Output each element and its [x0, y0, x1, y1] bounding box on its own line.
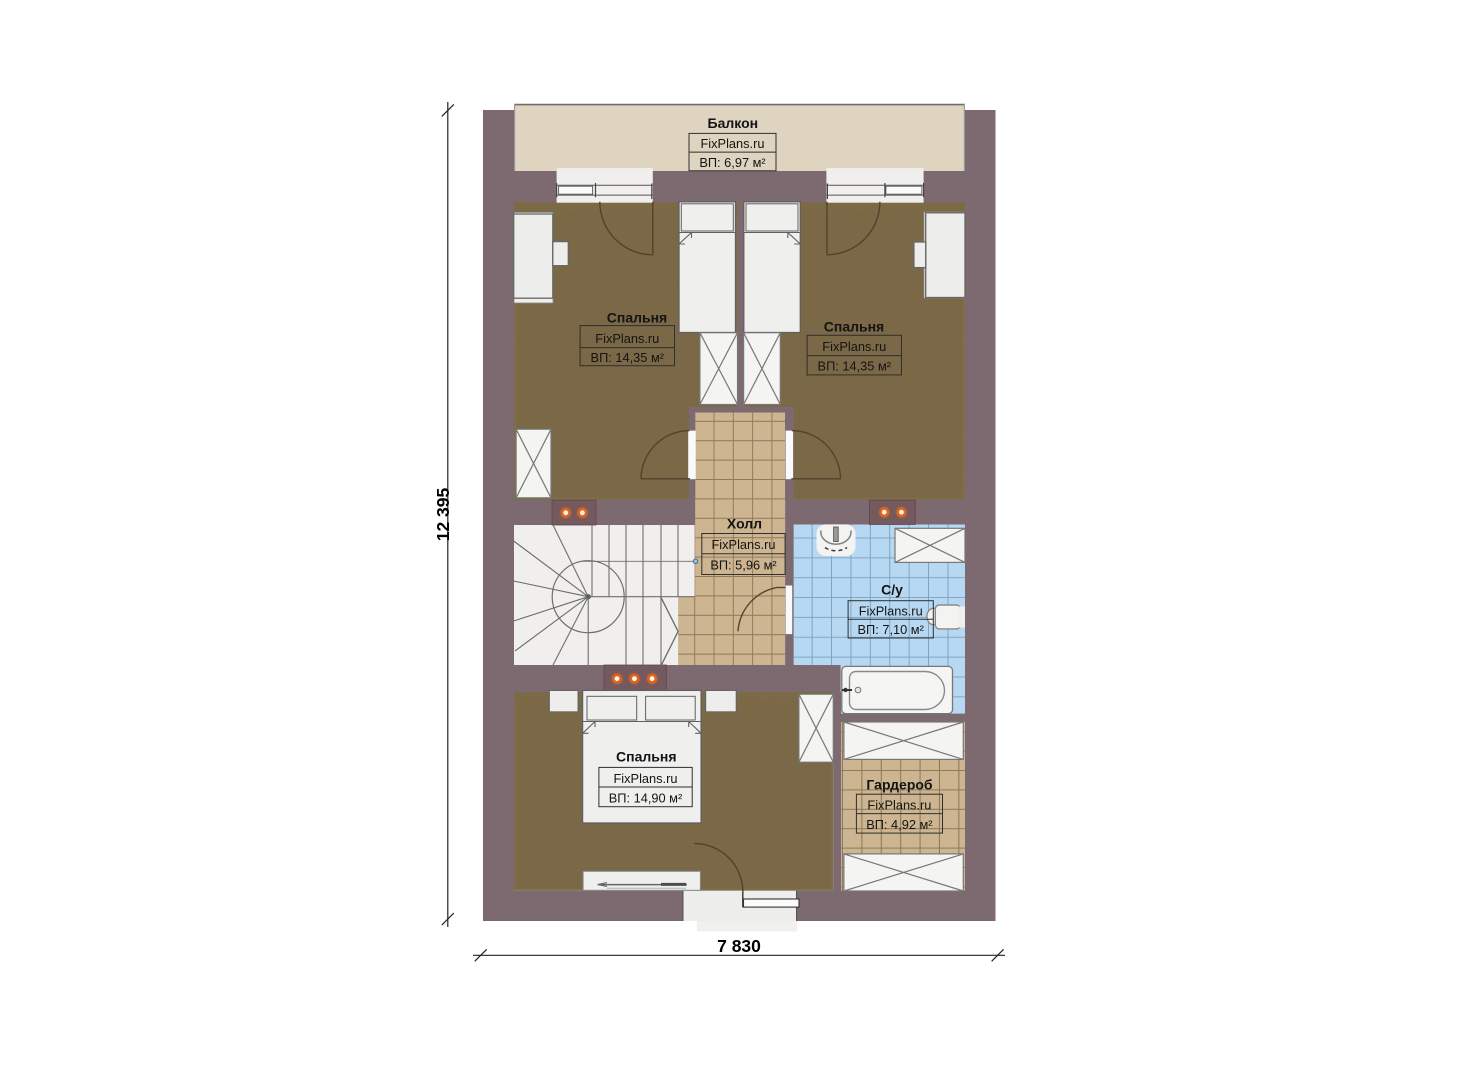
svg-text:Балкон: Балкон	[708, 115, 759, 131]
svg-text:Холл: Холл	[727, 516, 762, 532]
svg-text:FixPlans.ru: FixPlans.ru	[700, 136, 764, 151]
svg-text:7 830: 7 830	[717, 936, 761, 956]
svg-text:FixPlans.ru: FixPlans.ru	[822, 339, 886, 354]
svg-text:ВП: 14,90 м²: ВП: 14,90 м²	[609, 791, 683, 806]
svg-text:FixPlans.ru: FixPlans.ru	[711, 537, 775, 552]
svg-text:Спальня: Спальня	[607, 310, 667, 326]
svg-text:FixPlans.ru: FixPlans.ru	[867, 798, 931, 813]
svg-text:ВП: 7,10 м²: ВП: 7,10 м²	[858, 622, 925, 637]
svg-text:С/у: С/у	[881, 582, 903, 598]
svg-text:ВП: 14,35 м²: ВП: 14,35 м²	[818, 359, 892, 374]
svg-text:ВП: 4,92 м²: ВП: 4,92 м²	[866, 817, 933, 832]
svg-text:Гардероб: Гардероб	[866, 777, 933, 793]
svg-text:ВП: 14,35 м²: ВП: 14,35 м²	[591, 350, 665, 365]
svg-text:FixPlans.ru: FixPlans.ru	[595, 331, 659, 346]
svg-text:FixPlans.ru: FixPlans.ru	[859, 604, 923, 619]
svg-text:ВП: 5,96 м²: ВП: 5,96 м²	[710, 558, 777, 573]
svg-text:ВП: 6,97 м²: ВП: 6,97 м²	[699, 155, 766, 170]
svg-text:Спальня: Спальня	[616, 749, 676, 765]
svg-text:FixPlans.ru: FixPlans.ru	[613, 771, 677, 786]
svg-text:Спальня: Спальня	[824, 319, 884, 335]
svg-text:12 395: 12 395	[433, 487, 453, 541]
